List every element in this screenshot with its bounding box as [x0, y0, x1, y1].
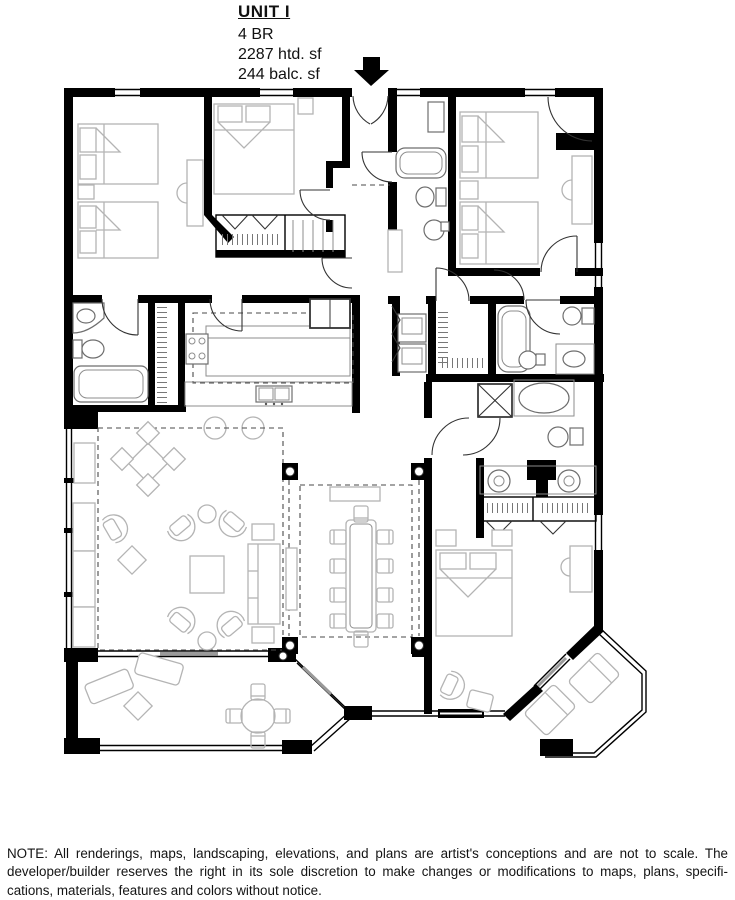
bathtub — [74, 366, 148, 402]
door-bathroom-4 — [526, 300, 560, 334]
door-bathroom-3 — [362, 152, 392, 182]
dining-table — [346, 520, 376, 632]
bifold-doors — [222, 215, 278, 229]
nightstand — [460, 181, 478, 199]
bed — [460, 112, 538, 178]
toilet — [548, 427, 583, 447]
bathroom-3 — [396, 102, 449, 240]
sink — [424, 220, 449, 240]
nightstand — [298, 98, 313, 114]
game-table-set — [111, 422, 186, 497]
bed — [460, 202, 538, 264]
closet-rod-master-2 — [540, 503, 590, 513]
bathroom-2 — [73, 303, 148, 402]
balcony-right-outline — [545, 629, 646, 757]
closet-rod-wic-1 — [438, 308, 448, 364]
door-master-hall — [432, 418, 500, 455]
windows — [64, 90, 602, 752]
round-table — [198, 632, 216, 650]
column — [411, 637, 427, 654]
nightstand — [436, 530, 456, 546]
column — [282, 463, 298, 480]
dresser — [388, 230, 402, 272]
column — [282, 637, 298, 654]
dresser — [177, 160, 203, 226]
sideboard — [330, 487, 380, 501]
closet-rod-wic-2 — [440, 358, 486, 368]
window-top-1 — [115, 90, 140, 96]
door-bedroom-3 — [541, 236, 577, 272]
dresser — [562, 156, 592, 224]
door-hall-closet — [322, 258, 352, 288]
window-top-3 — [397, 90, 420, 96]
disclaimer-line: NOTE: All renderings, maps, landscaping,… — [7, 845, 728, 863]
bedroom-1 — [78, 124, 203, 258]
end-table — [252, 627, 274, 643]
door-bedroom-1 — [102, 299, 138, 335]
dresser — [561, 546, 592, 592]
shower — [478, 384, 512, 417]
toilet — [563, 307, 594, 325]
bed — [78, 202, 158, 258]
kitchen-sink — [256, 386, 292, 405]
window-top-4 — [525, 90, 555, 96]
vanity — [556, 344, 594, 374]
window-living-south — [76, 651, 268, 657]
disclaimer-line: cations, materials, features and colors … — [7, 882, 728, 900]
garden-tub — [514, 380, 574, 416]
nightstand — [492, 530, 512, 546]
armchair — [438, 670, 469, 704]
disclaimer-note: NOTE: All renderings, maps, landscaping,… — [7, 845, 728, 900]
loveseat — [84, 668, 135, 705]
kitchen — [185, 299, 353, 439]
coffee-table — [190, 556, 224, 593]
side-table — [118, 546, 146, 574]
armchair — [100, 510, 132, 545]
sofa — [248, 544, 280, 624]
nightstand — [78, 185, 94, 199]
media-console — [286, 548, 297, 610]
end-table — [252, 524, 274, 540]
cooktop — [186, 334, 208, 364]
linen-cabinet — [428, 102, 444, 132]
closet-rod-hall — [157, 305, 167, 403]
floor-plan-page: { "unit": { "name": "UNIT I", "bedrooms"… — [0, 0, 735, 900]
patio-table-set — [226, 684, 290, 748]
counter-south — [185, 382, 352, 406]
toilet — [416, 187, 446, 207]
side-table — [124, 692, 152, 720]
dining-room — [300, 485, 412, 647]
window-top-2 — [260, 90, 293, 96]
disclaimer-line: developer/builder reserves the right in … — [7, 863, 728, 881]
floor-plan-drawing — [0, 0, 735, 840]
entry-double-door — [353, 96, 388, 124]
armchair — [165, 512, 200, 546]
balcony-left — [84, 652, 290, 748]
entry-arrow-icon — [354, 57, 389, 86]
column — [411, 463, 427, 480]
window-right-1 — [596, 243, 602, 287]
corner-vanity — [73, 303, 104, 333]
porch-rail-diagonal — [294, 658, 349, 713]
closet-rod-bedroom-2 — [220, 234, 282, 245]
closet-rod-master-1 — [486, 503, 528, 513]
lounge-chair — [568, 652, 620, 704]
bed — [214, 104, 294, 194]
bathroom-4 — [498, 306, 594, 374]
island — [206, 326, 350, 376]
porch-rail-bottom — [78, 713, 352, 751]
sectional-sofa — [73, 503, 95, 647]
master-bedroom — [436, 530, 592, 713]
refrigerator — [310, 299, 350, 328]
armchair — [165, 602, 200, 636]
console-table — [74, 443, 95, 483]
toilet — [73, 340, 104, 358]
round-table — [198, 505, 216, 523]
pedestal-sink — [519, 351, 545, 369]
bed — [436, 550, 512, 636]
armchair — [211, 606, 246, 640]
armchair — [213, 508, 248, 542]
sliding-door-living — [160, 652, 218, 656]
bed — [78, 124, 158, 184]
